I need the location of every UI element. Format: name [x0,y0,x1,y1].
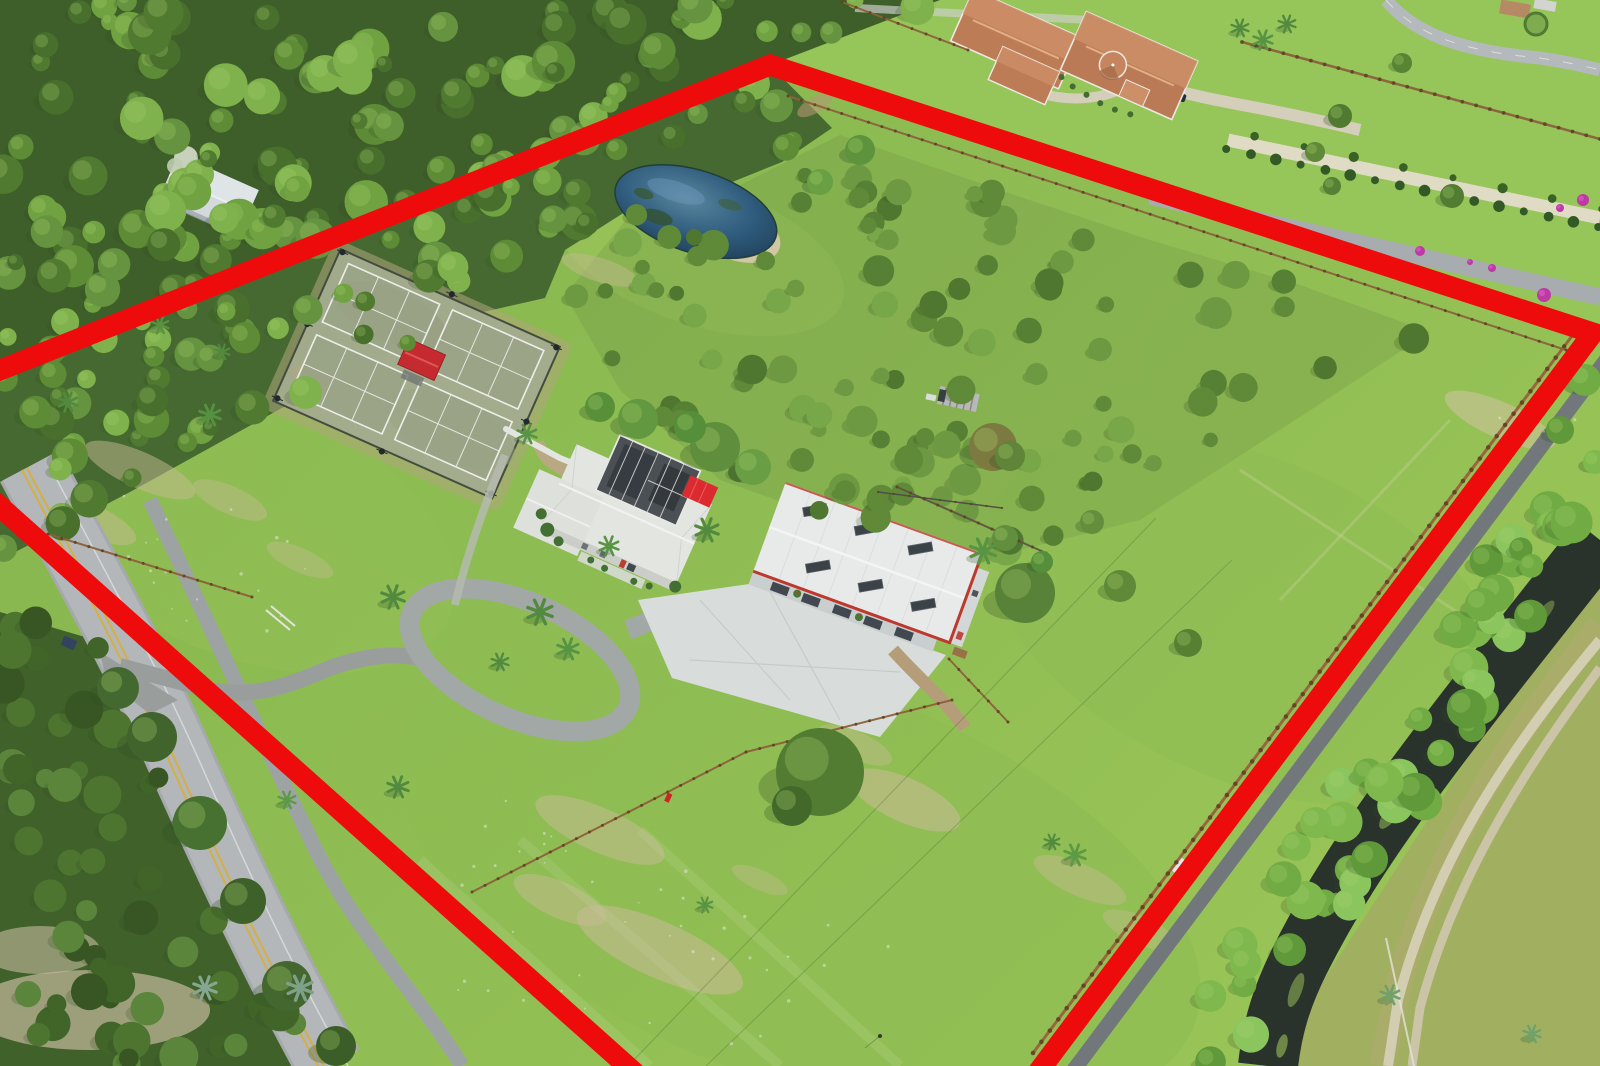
aerial-photo [0,0,1600,1066]
photo-grain [0,0,1600,1066]
